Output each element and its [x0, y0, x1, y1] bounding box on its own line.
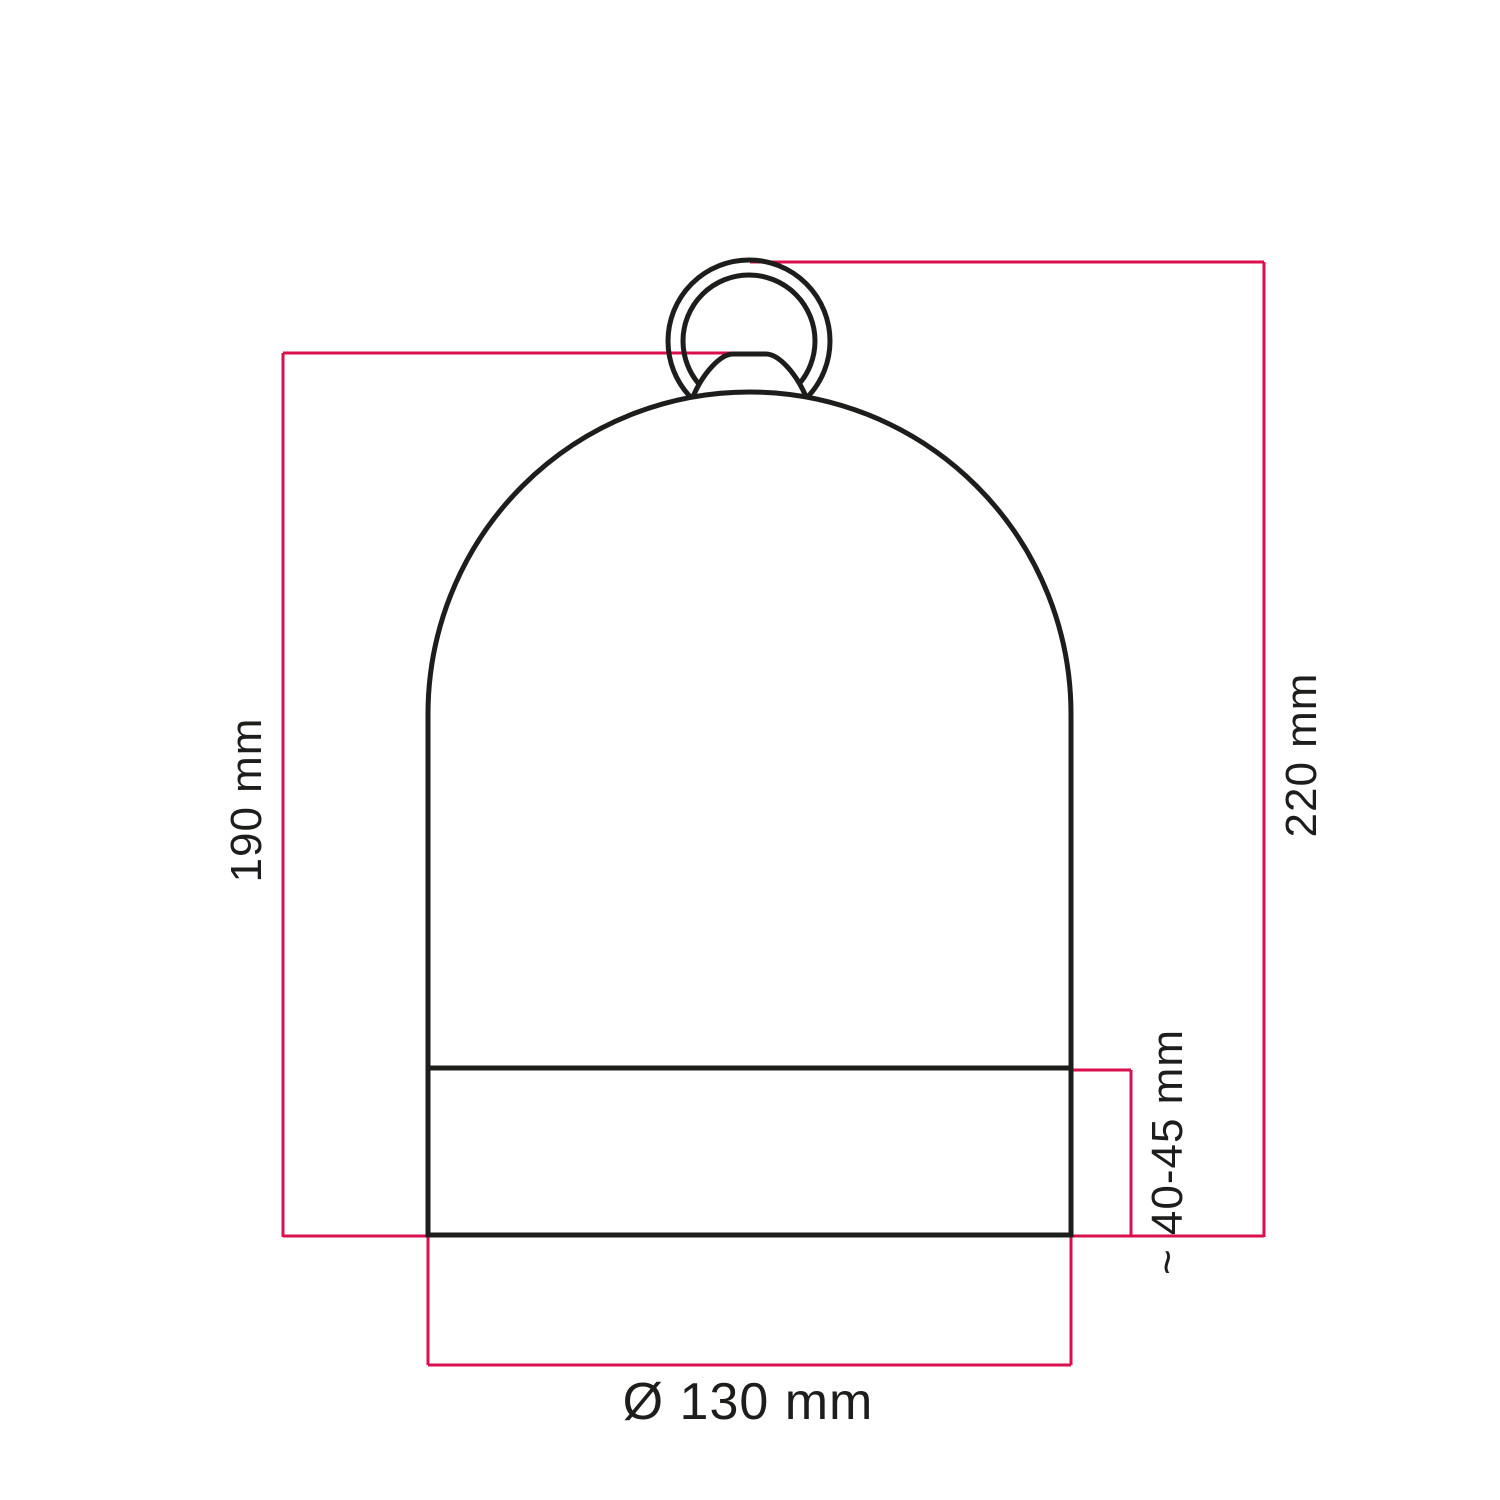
label-height-190: 190 mm	[222, 718, 271, 883]
label-diameter: Ø 130 mm	[623, 1373, 874, 1431]
dimension-drawing-canvas: 190 mm 220 mm ~ 40-45 mm Ø 130 mm	[0, 0, 1500, 1500]
label-height-220: 220 mm	[1277, 673, 1326, 838]
label-band-height: ~ 40-45 mm	[1143, 1029, 1192, 1275]
bell-lampshade-dimension-diagram: 190 mm 220 mm ~ 40-45 mm Ø 130 mm	[0, 0, 1500, 1500]
bell-dome-outline	[428, 392, 1071, 1235]
